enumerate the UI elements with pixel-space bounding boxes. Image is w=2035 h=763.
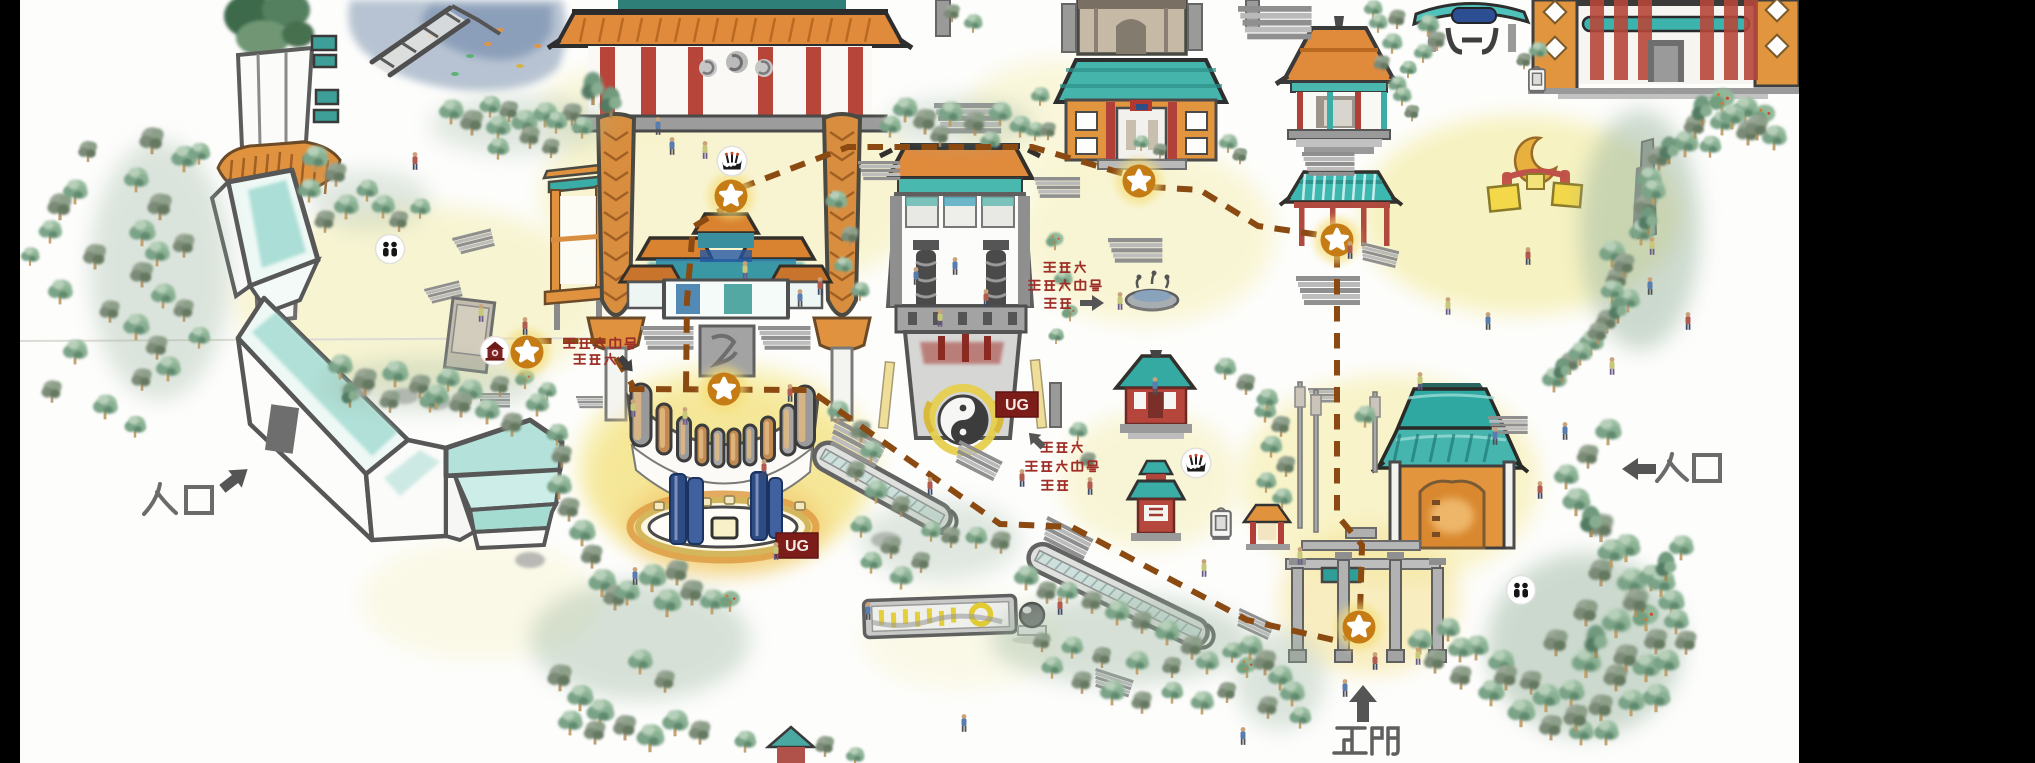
svg-text:UG: UG (785, 538, 809, 555)
svg-text:UG: UG (1005, 397, 1029, 414)
